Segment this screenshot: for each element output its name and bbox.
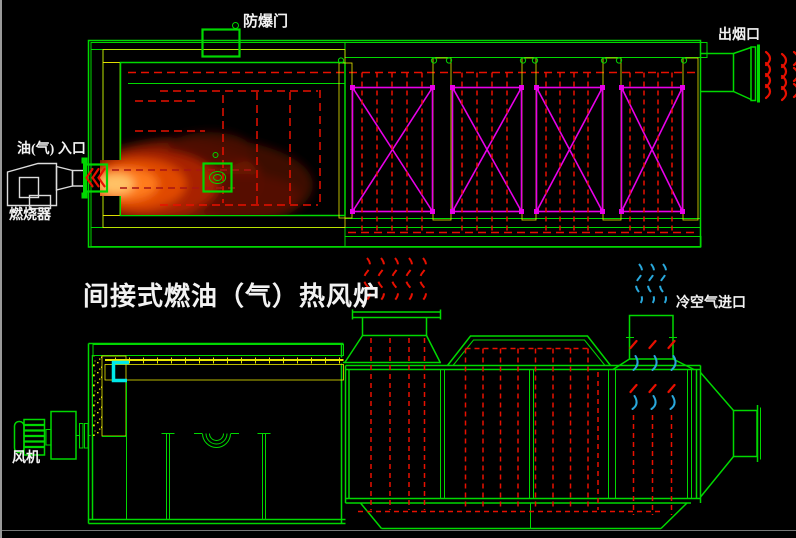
middle-hood	[448, 336, 611, 366]
anchor-circles	[338, 58, 686, 63]
tube-bundle-3	[534, 85, 605, 214]
furnace-body	[89, 344, 346, 524]
smoke-outlet-duct	[701, 45, 796, 103]
furnace-diagram	[0, 0, 796, 538]
label-smoke-outlet: 出烟口	[718, 29, 760, 44]
cad-viewer-canvas: 防爆门 出烟口 油(气) 入口 燃烧器 间接式燃油（气）热风炉 冷空气进口 风机	[0, 0, 796, 538]
tube-bundle-4	[619, 85, 685, 214]
tube-bundle-2	[450, 85, 524, 214]
air-tube-lines	[358, 338, 672, 515]
water-pipe-elbow	[114, 363, 130, 381]
label-oil-gas-inlet: 油(气) 入口	[17, 143, 86, 158]
cold-air-inlet-box	[613, 264, 694, 370]
smoke-waves	[766, 52, 796, 100]
label-explosion-door: 防爆门	[243, 15, 288, 31]
top-view-drawing	[8, 23, 796, 248]
label-burner: 燃烧器	[9, 209, 51, 224]
heat-exchanger-section	[338, 58, 698, 233]
explosion-door	[203, 23, 240, 57]
air-mixing-marks	[631, 341, 676, 409]
air-outlet-cone	[701, 373, 761, 498]
burner-assembly	[8, 158, 108, 209]
label-fan: 风机	[12, 452, 40, 467]
flame	[77, 132, 313, 233]
cold-air-waves	[636, 264, 666, 305]
burner-port-arcs	[194, 434, 239, 448]
drawing-title: 间接式燃油（气）热风炉	[83, 283, 380, 310]
window-left-edge	[0, 0, 2, 538]
label-cold-air-inlet: 冷空气进口	[676, 297, 746, 312]
